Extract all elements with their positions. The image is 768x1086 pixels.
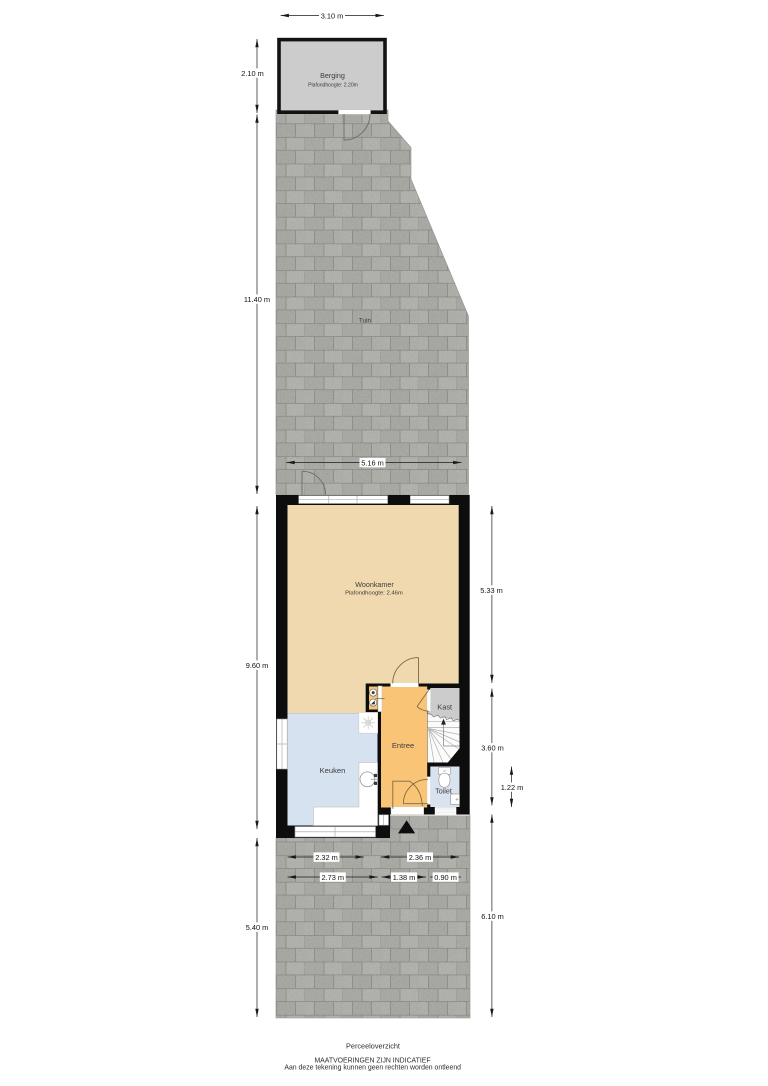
svg-text:2.73 m: 2.73 m — [321, 873, 344, 882]
svg-text:5.40 m: 5.40 m — [246, 923, 269, 932]
svg-text:5.33 m: 5.33 m — [480, 586, 503, 595]
svg-text:MAATVOERINGEN ZIJN INDICATIEF: MAATVOERINGEN ZIJN INDICATIEF — [314, 1057, 430, 1064]
svg-text:2.32 m: 2.32 m — [315, 853, 338, 862]
svg-text:3.60 m: 3.60 m — [481, 743, 504, 752]
svg-text:Berging: Berging — [320, 71, 345, 80]
svg-text:1.22 m: 1.22 m — [501, 783, 524, 792]
svg-text:Entree: Entree — [392, 741, 414, 750]
svg-text:Aan deze tekening kunnen geen: Aan deze tekening kunnen geen rechten wo… — [284, 1065, 461, 1072]
svg-text:6.10 m: 6.10 m — [481, 912, 504, 921]
svg-text:Perceeloverzicht: Perceeloverzicht — [346, 1041, 400, 1050]
svg-text:1.38 m: 1.38 m — [393, 873, 416, 882]
svg-text:Plafondhoogte: 2.20m: Plafondhoogte: 2.20m — [308, 82, 358, 88]
svg-text:Woonkamer: Woonkamer — [355, 580, 394, 589]
svg-text:2.36 m: 2.36 m — [409, 853, 432, 862]
svg-text:2.10 m: 2.10 m — [241, 69, 264, 78]
svg-text:Plafondhoogte: 2.46m: Plafondhoogte: 2.46m — [345, 590, 403, 596]
svg-text:Kast: Kast — [437, 702, 452, 711]
svg-text:0.90 m: 0.90 m — [434, 873, 457, 882]
svg-text:Tuin: Tuin — [359, 318, 372, 325]
svg-text:Keuken: Keuken — [320, 766, 346, 775]
svg-text:3.10 m: 3.10 m — [321, 11, 344, 20]
svg-text:Toilet: Toilet — [435, 787, 452, 796]
svg-text:5.16 m: 5.16 m — [361, 458, 384, 467]
svg-text:9.60 m: 9.60 m — [246, 661, 269, 670]
svg-text:11.40 m: 11.40 m — [244, 295, 270, 304]
